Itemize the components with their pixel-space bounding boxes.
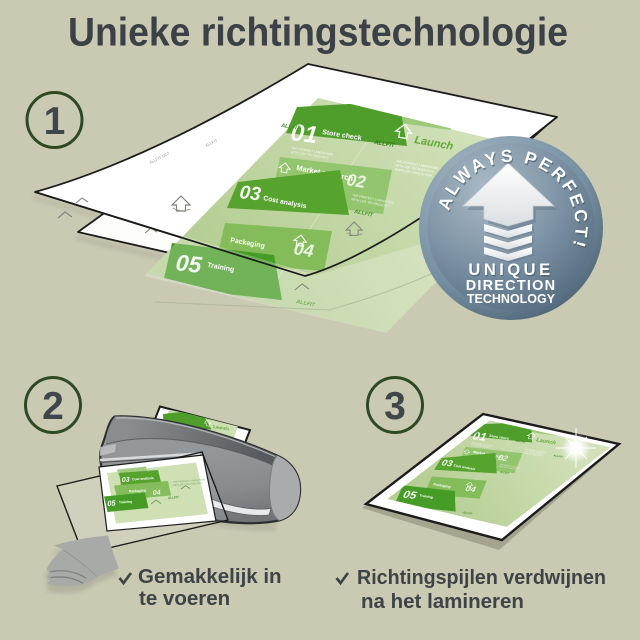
- svg-text:05: 05: [107, 498, 117, 508]
- svg-text:UNIQUE: UNIQUE: [468, 261, 553, 279]
- svg-text:2: 2: [42, 385, 64, 428]
- svg-text:te voeren: te voeren: [139, 587, 230, 610]
- svg-text:1: 1: [44, 100, 66, 143]
- svg-text:Unieke richtingstechnologie: Unieke richtingstechnologie: [68, 11, 568, 55]
- svg-text:na het lamineren: na het lamineren: [361, 590, 524, 613]
- svg-text:TECHNOLOGY: TECHNOLOGY: [467, 292, 556, 306]
- svg-text:04: 04: [153, 489, 161, 497]
- svg-text:03: 03: [122, 476, 130, 484]
- svg-text:Gemakkelijk in: Gemakkelijk in: [138, 565, 282, 588]
- svg-text:3: 3: [384, 385, 406, 428]
- svg-text:Richtingspijlen verdwijnen: Richtingspijlen verdwijnen: [357, 566, 606, 589]
